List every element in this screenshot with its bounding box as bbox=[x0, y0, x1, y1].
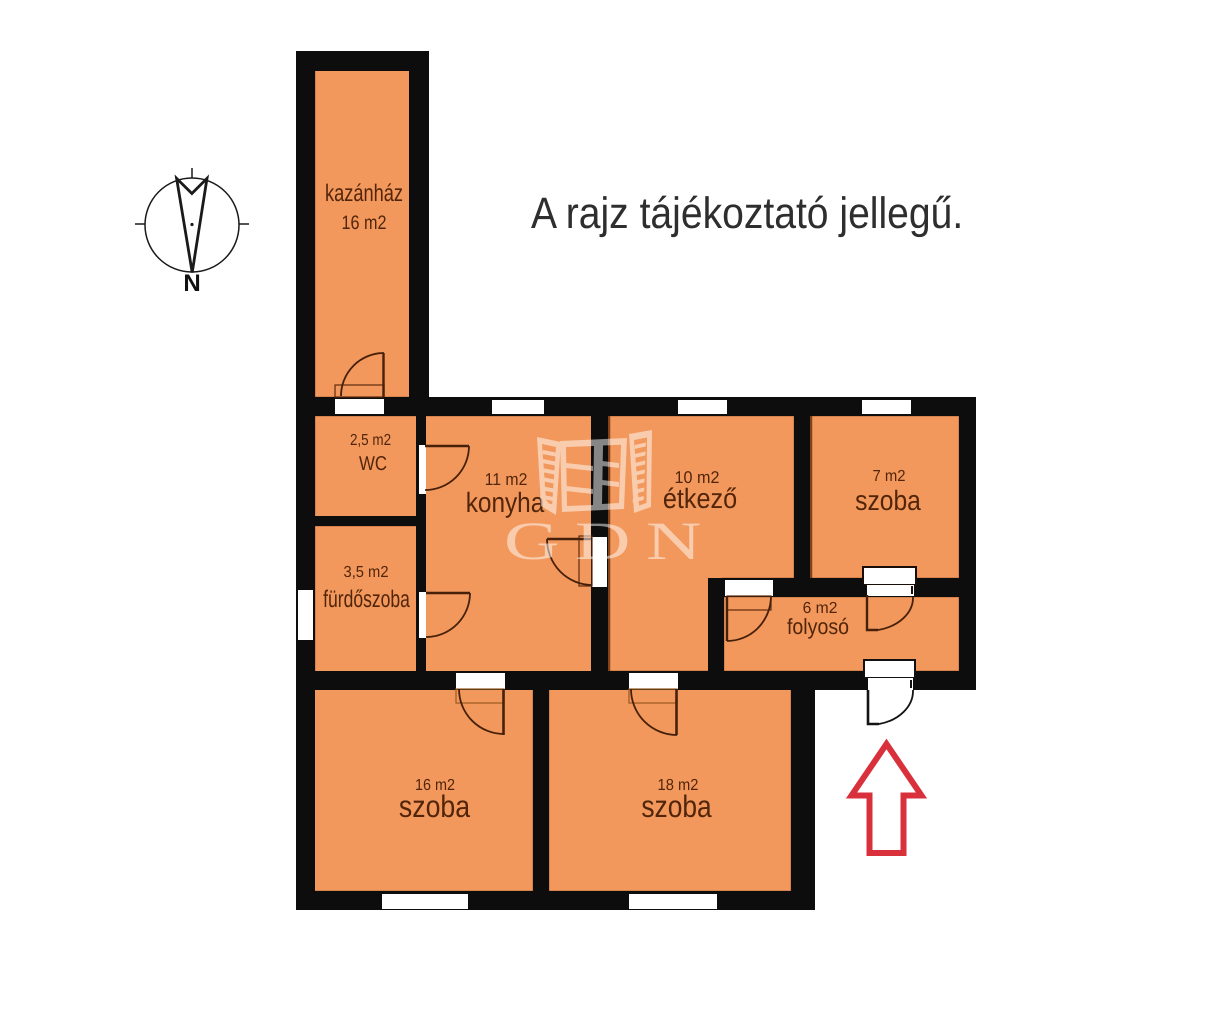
svg-text:szoba: szoba bbox=[641, 789, 712, 824]
svg-text:3,5 m2: 3,5 m2 bbox=[343, 564, 388, 581]
svg-text:WC: WC bbox=[359, 453, 387, 475]
svg-text:A rajz tájékoztató jellegű.: A rajz tájékoztató jellegű. bbox=[531, 189, 963, 238]
svg-text:GDN: GDN bbox=[504, 511, 717, 571]
svg-text:folyosó: folyosó bbox=[787, 614, 849, 639]
svg-text:2,5 m2: 2,5 m2 bbox=[350, 432, 391, 449]
svg-text:N: N bbox=[183, 270, 200, 297]
svg-text:kazánház: kazánház bbox=[325, 180, 403, 207]
svg-text:7 m2: 7 m2 bbox=[872, 468, 905, 485]
svg-text:szoba: szoba bbox=[399, 789, 471, 824]
svg-text:étkező: étkező bbox=[663, 483, 737, 514]
svg-text:fürdőszoba: fürdőszoba bbox=[323, 586, 410, 613]
svg-text:szoba: szoba bbox=[855, 485, 921, 516]
svg-text:16 m2: 16 m2 bbox=[342, 212, 387, 234]
